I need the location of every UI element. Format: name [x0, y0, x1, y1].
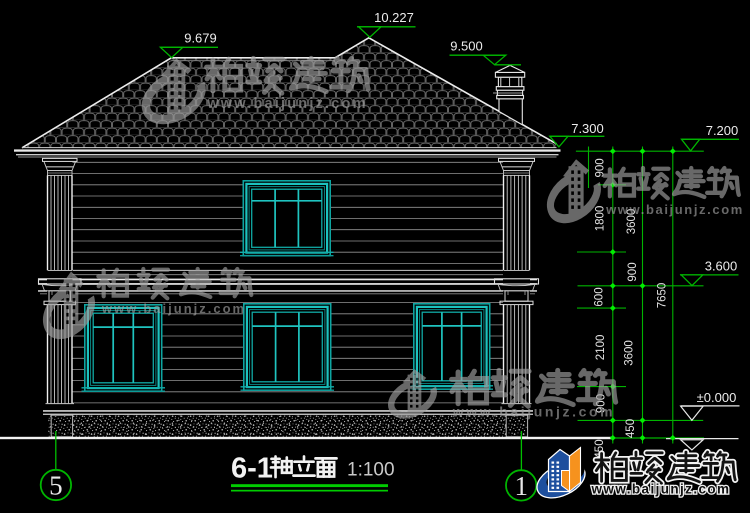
svg-text:www.baijunjz.com: www.baijunjz.com — [206, 96, 367, 112]
svg-text:600: 600 — [594, 287, 606, 306]
svg-text:6-1: 6-1 — [231, 453, 273, 485]
svg-text:±0.000: ±0.000 — [697, 390, 737, 405]
svg-text:450: 450 — [625, 419, 637, 438]
svg-text:1:100: 1:100 — [347, 460, 395, 481]
svg-text:www.baijunjz.com: www.baijunjz.com — [605, 202, 744, 217]
svg-text:3600: 3600 — [624, 340, 636, 366]
svg-text:7650: 7650 — [656, 283, 668, 309]
svg-text:10.227: 10.227 — [374, 10, 414, 25]
svg-text:1800: 1800 — [595, 206, 607, 232]
svg-text:2100: 2100 — [595, 335, 607, 361]
svg-text:9.500: 9.500 — [450, 39, 483, 54]
svg-text:5: 5 — [49, 471, 63, 501]
svg-text:7.200: 7.200 — [706, 123, 739, 138]
svg-text:www.baijunjz.com: www.baijunjz.com — [101, 301, 246, 316]
svg-text:1: 1 — [514, 471, 528, 501]
svg-text:900: 900 — [627, 262, 639, 281]
svg-text:9.679: 9.679 — [184, 31, 217, 46]
svg-text:3.600: 3.600 — [705, 259, 738, 274]
svg-text:7.300: 7.300 — [571, 121, 604, 136]
svg-text:www.baijunjz.com: www.baijunjz.com — [452, 404, 615, 420]
svg-text:www.baijunjz.com: www.baijunjz.com — [591, 482, 731, 497]
